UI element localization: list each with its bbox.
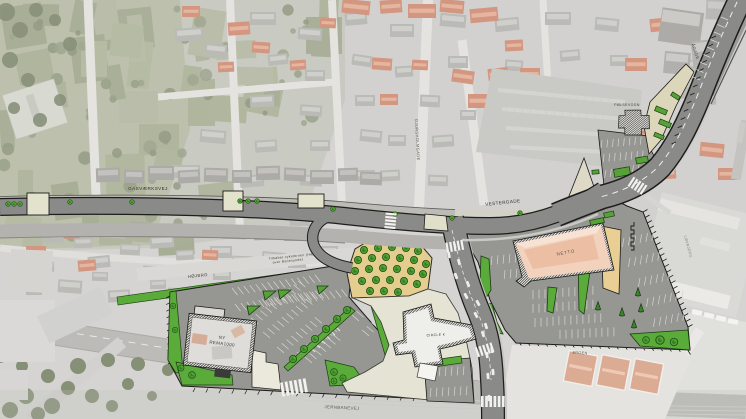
svg-text:NY: NY [218,335,225,341]
svg-text:GASVÆRKSVEJ: GASVÆRKSVEJ [128,186,168,191]
svg-text:BROEN: BROEN [572,351,587,356]
svg-text:PØLSEVOGN: PØLSEVOGN [614,103,640,107]
